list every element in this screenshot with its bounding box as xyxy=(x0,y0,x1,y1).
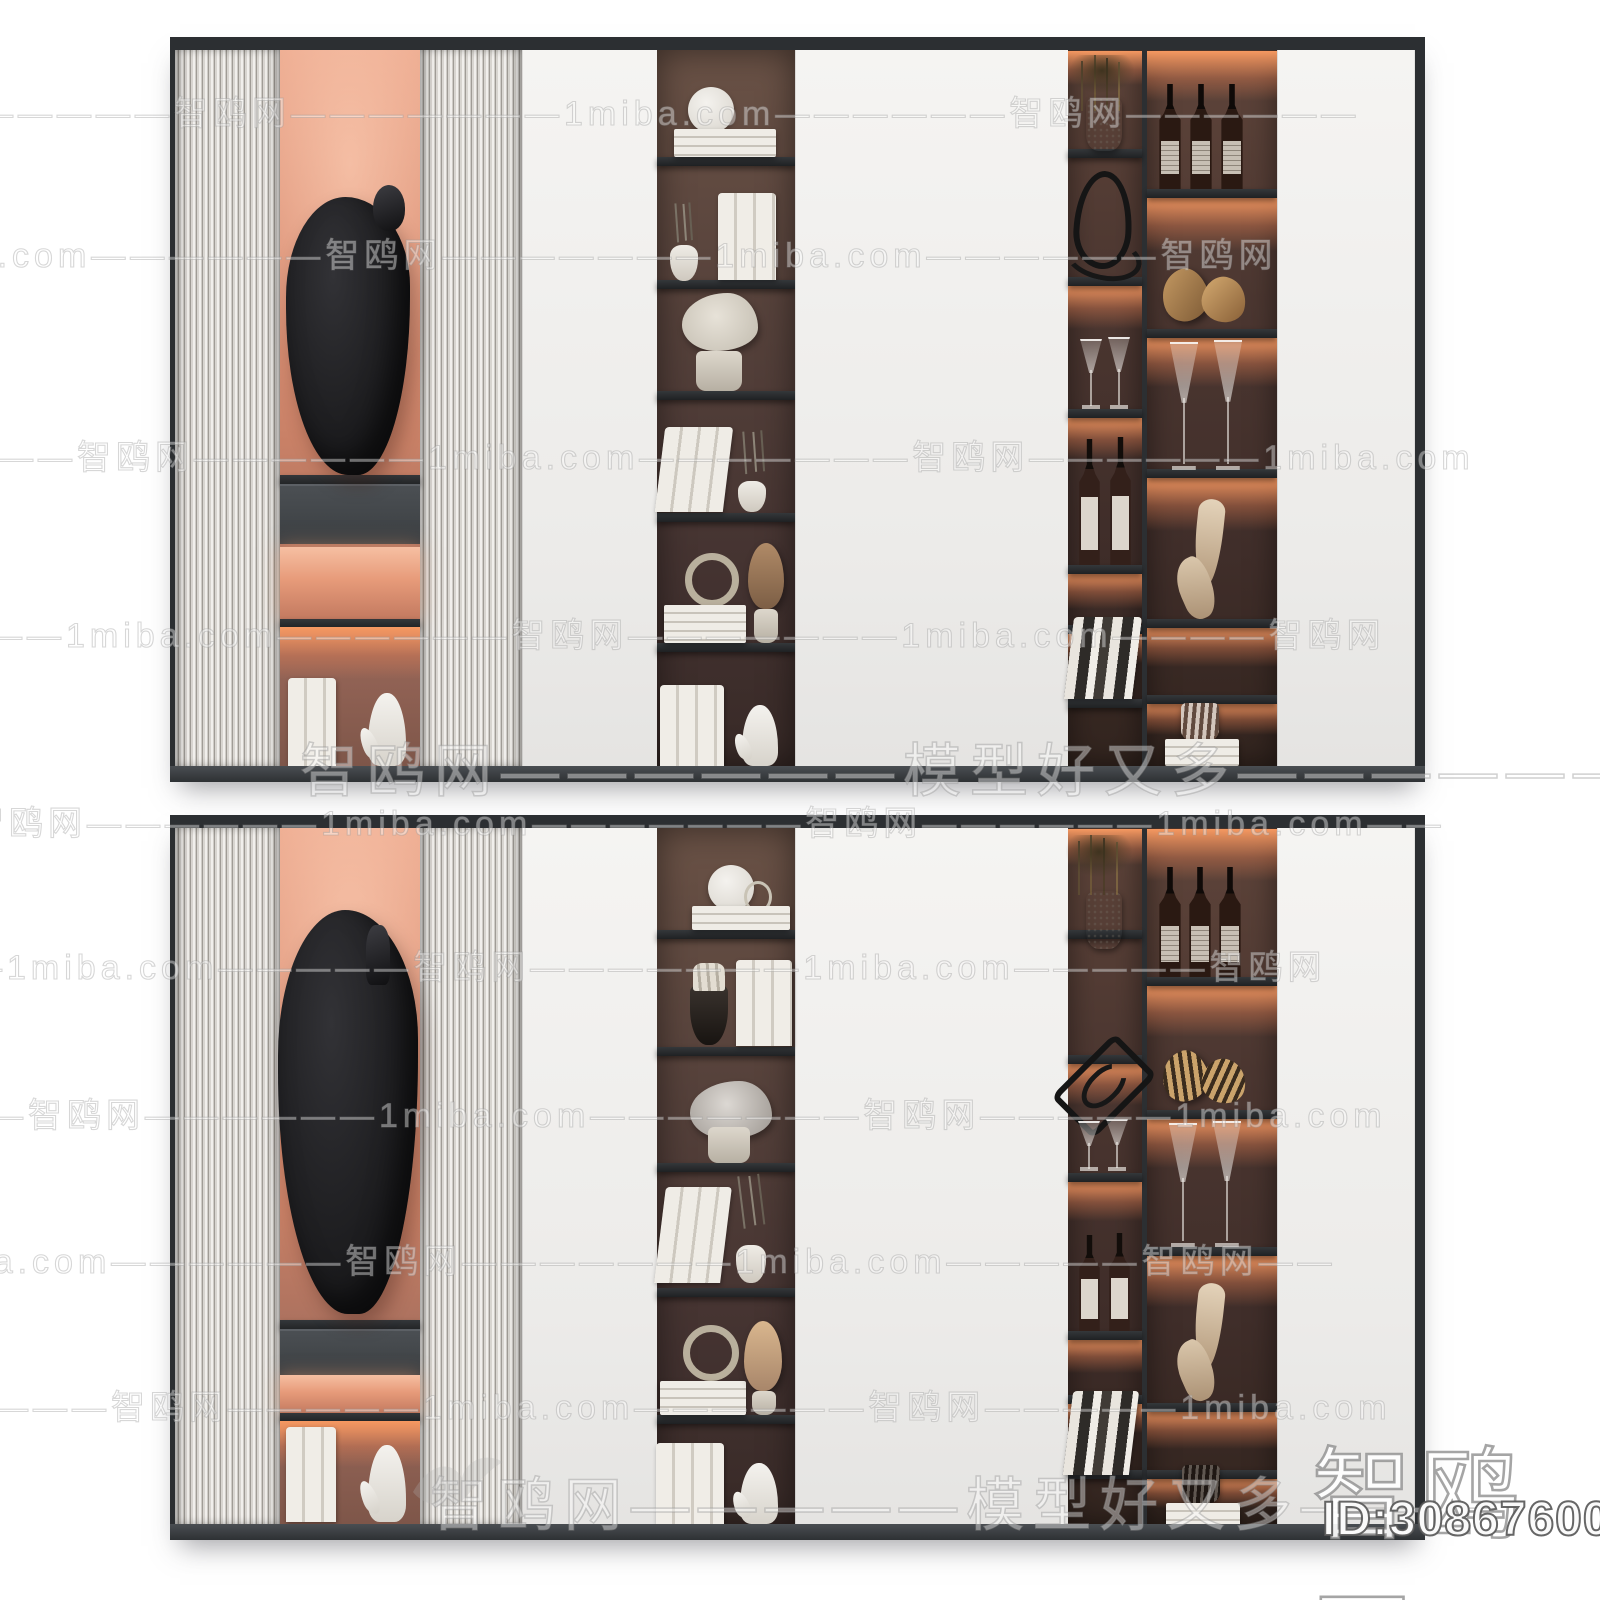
ring-sculpture xyxy=(683,1325,739,1381)
shelf-divider xyxy=(657,280,795,289)
shelf xyxy=(280,1320,420,1329)
shelf-divider xyxy=(1147,329,1277,338)
backlight xyxy=(1068,571,1142,609)
shelf-divider xyxy=(657,391,795,400)
books xyxy=(654,1187,732,1283)
books xyxy=(286,1427,336,1522)
backlight xyxy=(1068,1179,1142,1221)
shelf-divider xyxy=(1068,565,1142,574)
book-stack xyxy=(674,129,776,157)
backlight xyxy=(280,627,420,679)
books xyxy=(718,193,776,280)
book-stack xyxy=(692,906,790,930)
product-screenshot: ——————智鸥网———————1miba.com——————智鸥网——————… xyxy=(0,0,1600,1600)
shelf-divider xyxy=(657,1288,795,1297)
backlight xyxy=(1147,829,1277,881)
books xyxy=(1064,617,1142,699)
plant-pot xyxy=(708,1127,750,1163)
white-door-2 xyxy=(795,828,1070,1524)
shelf-divider xyxy=(657,930,795,939)
book-stack xyxy=(664,605,746,643)
shelf xyxy=(280,1413,420,1421)
model-id: ID:308676006 xyxy=(1322,1492,1600,1547)
ring-sculpture xyxy=(685,553,739,607)
shelf xyxy=(280,475,420,484)
shelf-divider xyxy=(657,157,795,166)
backlit-panel xyxy=(280,1375,420,1413)
shelf-divider xyxy=(657,1415,795,1424)
shelf-divider xyxy=(1068,1173,1142,1182)
white-door-3 xyxy=(1277,50,1415,766)
shell-sculpture xyxy=(1162,1043,1246,1109)
shelf-divider xyxy=(1147,1110,1277,1119)
wine-glass xyxy=(1166,1123,1200,1247)
fluted-panel-left xyxy=(175,50,280,766)
shelf-divider xyxy=(1147,1247,1277,1256)
white-door-1 xyxy=(522,50,659,766)
books xyxy=(660,685,724,766)
wine-glass xyxy=(1210,1121,1244,1247)
dried-plant xyxy=(724,1172,777,1239)
drawer xyxy=(280,1329,420,1375)
shelf-divider xyxy=(1147,1403,1277,1412)
book-stack xyxy=(660,1381,746,1415)
sculpture-top xyxy=(373,185,405,231)
wine-glass xyxy=(1104,1119,1130,1171)
backlight xyxy=(1068,415,1142,459)
sculpture-top xyxy=(366,925,390,985)
wine-glass xyxy=(1076,1121,1102,1171)
books xyxy=(736,960,792,1046)
dried-plant xyxy=(1066,835,1132,895)
shelf-divider xyxy=(1068,409,1142,418)
shelf-divider xyxy=(657,513,795,522)
plant-pot xyxy=(696,351,742,391)
backlight xyxy=(1068,1337,1142,1373)
figure-sculpture xyxy=(1178,1283,1240,1401)
wine-glass xyxy=(1106,337,1132,409)
books xyxy=(288,678,336,766)
white-vase xyxy=(1086,97,1122,151)
render-view-top xyxy=(170,37,1425,782)
shelf-divider xyxy=(657,1047,795,1056)
fluted-panel-right xyxy=(420,50,522,766)
cup xyxy=(1181,703,1219,741)
shelf-column-center xyxy=(657,828,795,1524)
white-door-2 xyxy=(795,50,1070,766)
white-door-1 xyxy=(522,828,659,1524)
disc-sculpture xyxy=(688,87,734,133)
backlight xyxy=(1147,195,1277,251)
shelf-divider xyxy=(1147,977,1277,986)
render-view-bottom xyxy=(170,815,1425,1540)
backlight xyxy=(1147,1409,1277,1449)
shelf xyxy=(280,619,420,627)
shelf-divider xyxy=(1147,619,1277,628)
backlight xyxy=(1147,983,1277,1037)
shelf-divider xyxy=(1068,699,1142,708)
book-stack xyxy=(1165,739,1239,766)
backlight xyxy=(1147,625,1277,667)
backlight xyxy=(1068,283,1142,329)
fluted-panel-right xyxy=(420,828,522,1524)
cup xyxy=(1182,1465,1220,1503)
shell-sculpture xyxy=(1162,261,1246,329)
wine-glass xyxy=(1078,339,1104,409)
book-stack xyxy=(1166,1503,1240,1527)
backlit-panel xyxy=(280,547,420,619)
backlight xyxy=(1147,51,1277,101)
shelf-divider xyxy=(657,1163,795,1172)
shelf-column-center xyxy=(657,50,795,766)
shelf-divider xyxy=(1147,469,1277,478)
figure-sculpture xyxy=(1178,499,1240,619)
wine-glass xyxy=(1211,340,1245,470)
dried-plant xyxy=(731,430,774,483)
books xyxy=(656,1443,724,1524)
shelf-divider xyxy=(1068,1331,1142,1340)
wine-glass xyxy=(1167,342,1201,470)
books xyxy=(1063,1391,1139,1475)
shelf-divider xyxy=(657,643,795,652)
plant-pot xyxy=(754,609,778,643)
books xyxy=(655,427,733,512)
fluted-panel-left xyxy=(175,828,280,1524)
seagull-logo-icon xyxy=(408,1440,508,1510)
white-vase xyxy=(1086,891,1122,949)
shelf-divider xyxy=(1147,189,1277,198)
drawer xyxy=(280,484,420,544)
dried-plant xyxy=(664,202,701,250)
plant-pot xyxy=(752,1391,776,1415)
